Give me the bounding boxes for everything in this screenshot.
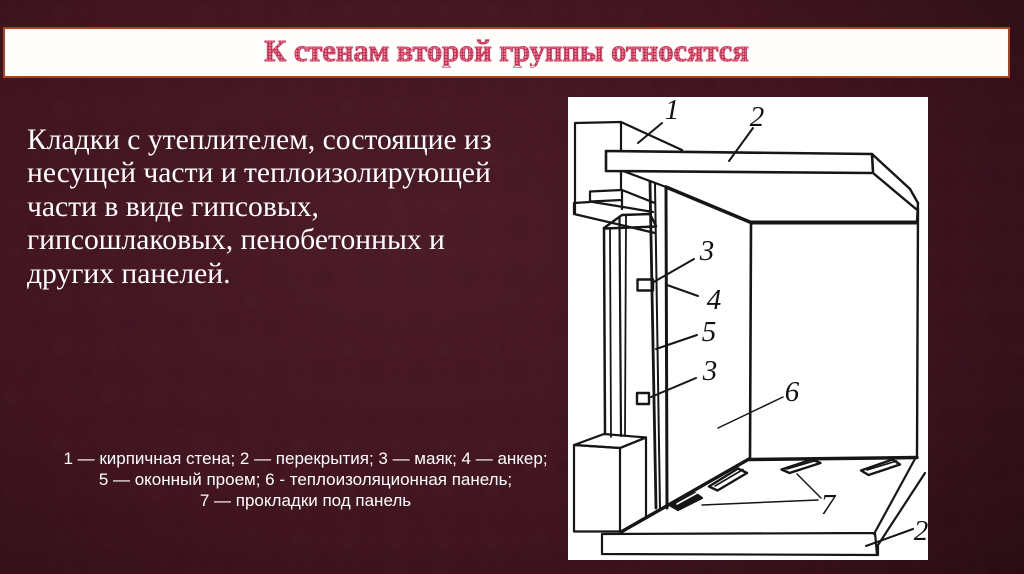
svg-text:2: 2 — [750, 101, 765, 133]
svg-text:2: 2 — [914, 515, 928, 547]
svg-text:6: 6 — [785, 376, 800, 408]
svg-text:3: 3 — [702, 355, 718, 387]
svg-text:3: 3 — [699, 235, 715, 267]
svg-text:7: 7 — [821, 489, 837, 521]
svg-text:1: 1 — [665, 97, 680, 126]
svg-text:4: 4 — [707, 284, 722, 316]
svg-text:5: 5 — [702, 316, 717, 348]
